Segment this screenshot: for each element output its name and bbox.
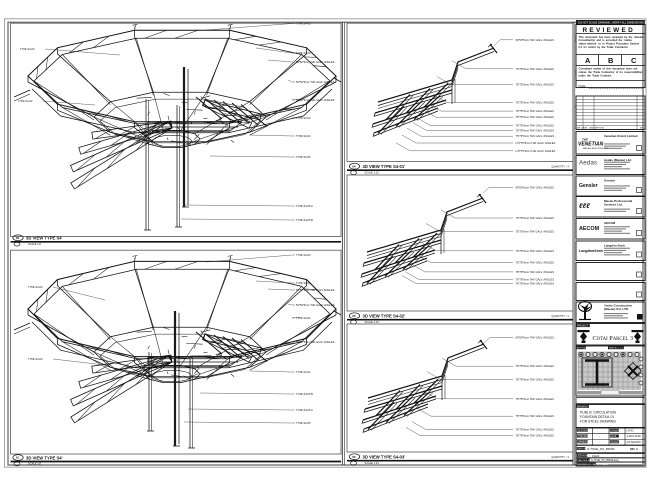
svg-text:under the Trade Contract.: under the Trade Contract. bbox=[579, 73, 612, 77]
svg-text:TYPE S4-03: TYPE S4-03 bbox=[296, 22, 311, 26]
svg-text:SCALE 1:8: SCALE 1:8 bbox=[28, 462, 41, 466]
svg-text:75*75*6mm THK GALV. ANGLES: 75*75*6mm THK GALV. ANGLES bbox=[516, 216, 555, 220]
svg-text:31122: 31122 bbox=[592, 454, 600, 458]
svg-text:PARCEL 1, LOT 2: PARCEL 1, LOT 2 bbox=[609, 347, 627, 350]
svg-text:KEY PLAN: KEY PLAN bbox=[577, 347, 588, 350]
svg-text:QUANTITY : 4: QUANTITY : 4 bbox=[552, 455, 570, 459]
svg-text:SCALE: SCALE bbox=[610, 441, 618, 444]
svg-text:QUANTITY : 4: QUANTITY : 4 bbox=[552, 164, 570, 168]
svg-text:75*75*6mm THK GALV. ANGLES: 75*75*6mm THK GALV. ANGLES bbox=[516, 278, 555, 282]
svg-text:SCALE 1:8: SCALE 1:8 bbox=[28, 242, 41, 246]
svg-text:75*75*6mm THK GALV. ANGLES: 75*75*6mm THK GALV. ANGLES bbox=[516, 129, 555, 133]
svg-text:75*75*6mm THK GALV. ANGLES: 75*75*6mm THK GALV. ANGLES bbox=[516, 101, 555, 105]
svg-text:QUANTITY : 4: QUANTITY : 4 bbox=[552, 314, 570, 318]
svg-text:TYPE S4-03: TYPE S4-03 bbox=[296, 116, 311, 120]
svg-text:C: C bbox=[631, 56, 637, 65]
svg-text:L75*75*6mm THK GALV. ANGLES: L75*75*6mm THK GALV. ANGLES bbox=[516, 141, 556, 145]
svg-text:Consultant(s) and is accord: Consultant(s) and is accorded the 'statu… bbox=[579, 38, 633, 42]
svg-text:75*75*6mm THK GALV. ANGLES: 75*75*6mm THK GALV. ANGLES bbox=[516, 260, 555, 264]
svg-text:5.4 for action by the Tra: 5.4 for action by the Trade Contractor. bbox=[579, 45, 629, 49]
svg-text:REFERENCE CAD FILE NAME: REFERENCE CAD FILE NAME bbox=[577, 463, 608, 466]
svg-text:(Macau) CO, LTD.: (Macau) CO, LTD. bbox=[604, 307, 629, 311]
svg-text:DO NOT SCALE DRAWING. VERIFY A: DO NOT SCALE DRAWING. VERIFY ALL DIMENSI… bbox=[578, 21, 650, 25]
svg-text:DRAWING TITLE: DRAWING TITLE bbox=[577, 405, 595, 408]
svg-text:75*75*6mm THK GALV. ANGLES: 75*75*6mm THK GALV. ANGLES bbox=[516, 282, 555, 286]
svg-text:S-TSUE_PZ_85099.dwg: S-TSUE_PZ_85099.dwg bbox=[591, 459, 619, 462]
svg-text:50*50*5mm THK GALV. ANGLES: 50*50*5mm THK GALV. ANGLES bbox=[296, 98, 335, 102]
svg-text:50*50*5mm THK GALV. ANGLES: 50*50*5mm THK GALV. ANGLES bbox=[296, 303, 335, 307]
svg-text:3D VIEW TYPE S4': 3D VIEW TYPE S4' bbox=[26, 455, 63, 460]
svg-text:50*50*5mm THK GALV. ANGLES: 50*50*5mm THK GALV. ANGLES bbox=[296, 80, 335, 84]
svg-text:MK DATE DESCRIPTION: MK DATE DESCRIPTION bbox=[577, 127, 604, 130]
svg-text:Aedas: Aedas bbox=[579, 160, 597, 167]
svg-text:status referred to in Proj: status referred to in Project Procedure … bbox=[579, 42, 640, 46]
svg-text:3D VIEW TYPE S4: 3D VIEW TYPE S4 bbox=[26, 236, 62, 241]
svg-text:TYPE S4-05 B: TYPE S4-05 B bbox=[296, 392, 313, 396]
svg-text:50*50*5mm THK GALV. ANGLES: 50*50*5mm THK GALV. ANGLES bbox=[516, 335, 555, 339]
svg-text:TYPE S4-05 B: TYPE S4-05 B bbox=[296, 218, 313, 222]
svg-text:DRAWN: DRAWN bbox=[610, 429, 619, 432]
svg-text:75*75*6mm THK GALV. ANGLES: 75*75*6mm THK GALV. ANGLES bbox=[516, 83, 555, 87]
svg-text:50*50*5mm THK GALV. ANGLES: 50*50*5mm THK GALV. ANGLES bbox=[296, 340, 335, 344]
svg-text:75*75*6mm THK GALV. ANGLES: 75*75*6mm THK GALV. ANGLES bbox=[516, 109, 555, 113]
svg-text:B: B bbox=[608, 56, 614, 65]
svg-text:3D VIEW TYPE S4-02': 3D VIEW TYPE S4-02' bbox=[363, 314, 406, 319]
svg-text:Gensler: Gensler bbox=[579, 183, 598, 189]
svg-text:75*75*6mm THK GALV. ANGLES: 75*75*6mm THK GALV. ANGLES bbox=[516, 397, 555, 401]
svg-text:75*75*6mm THK GALV. ANGLES: 75*75*6mm THK GALV. ANGLES bbox=[516, 378, 555, 382]
svg-text:75*75*6mm THK GALV. ANGLES: 75*75*6mm THK GALV. ANGLES bbox=[516, 230, 555, 234]
svg-text:50*50*5mm THK GALV. ANGLES: 50*50*5mm THK GALV. ANGLES bbox=[296, 60, 335, 64]
svg-text:A: A bbox=[585, 56, 591, 65]
svg-text:75*75*6mm THK GALV. ANGLES: 75*75*6mm THK GALV. ANGLES bbox=[516, 414, 555, 418]
svg-text:06: 06 bbox=[352, 455, 356, 459]
svg-text:Venetian Orient Limited: Venetian Orient Limited bbox=[604, 134, 638, 138]
svg-text:75*75*6mm THK GALV. ANGLES: 75*75*6mm THK GALV. ANGLES bbox=[516, 115, 555, 119]
svg-text:AS SHOWN: AS SHOWN bbox=[627, 440, 641, 444]
svg-text:Services Ltd.: Services Ltd. bbox=[604, 202, 623, 206]
svg-text:LYHO: LYHO bbox=[627, 428, 634, 432]
svg-text:75*75*6mm THK GALV. ANGLES: 75*75*6mm THK GALV. ANGLES bbox=[516, 134, 555, 138]
svg-text:APPROVED: APPROVED bbox=[577, 441, 590, 444]
svg-text:75*75*6mm THK GALV. ANGLES: 75*75*6mm THK GALV. ANGLES bbox=[516, 270, 555, 274]
svg-text:TYPE S4-03: TYPE S4-03 bbox=[296, 316, 311, 320]
svg-text:TYPE S4-05 A: TYPE S4-05 A bbox=[296, 408, 313, 412]
svg-text:75*75*6mm THK GALV. ANGLES: 75*75*6mm THK GALV. ANGLES bbox=[516, 433, 555, 437]
svg-text:10: 10 bbox=[16, 456, 20, 460]
svg-text:S-TSUE_PZ_85099: S-TSUE_PZ_85099 bbox=[587, 447, 615, 451]
svg-text:75*75*6mm THK GALV. ANGLES: 75*75*6mm THK GALV. ANGLES bbox=[516, 428, 555, 432]
svg-text:3D VIEW TYPE S4-01': 3D VIEW TYPE S4-01' bbox=[363, 164, 406, 169]
svg-text:DWG NO: DWG NO bbox=[577, 449, 587, 451]
svg-text:AECOM: AECOM bbox=[579, 226, 600, 232]
svg-text:3D VIEW TYPE S4-03': 3D VIEW TYPE S4-03' bbox=[363, 455, 406, 460]
svg-text:-: - bbox=[599, 441, 600, 444]
svg-text:75*75*6mm THK GALV. ANGLES: 75*75*6mm THK GALV. ANGLES bbox=[516, 67, 555, 71]
svg-text:05: 05 bbox=[352, 314, 356, 318]
svg-text:TYPE S4-03: TYPE S4-03 bbox=[28, 357, 43, 361]
svg-text:TYPE S4-03: TYPE S4-03 bbox=[296, 253, 311, 257]
svg-text:Aedas (Macau) Ltd.: Aedas (Macau) Ltd. bbox=[604, 158, 632, 162]
svg-text:50*50*5mm THK GALV. ANGLES: 50*50*5mm THK GALV. ANGLES bbox=[296, 288, 335, 292]
svg-text:L75*75*6mm THK GALV. ANGLES: L75*75*6mm THK GALV. ANGLES bbox=[516, 149, 556, 153]
svg-text:TYPE S4-05 A: TYPE S4-05 A bbox=[296, 204, 313, 208]
svg-text:SCALE 1:10: SCALE 1:10 bbox=[365, 461, 380, 465]
svg-text:TYPE S4-03: TYPE S4-03 bbox=[20, 47, 35, 51]
svg-text:LangdonSeah: LangdonSeah bbox=[579, 249, 604, 253]
svg-text:1-MAY-2018: 1-MAY-2018 bbox=[627, 434, 642, 438]
svg-text:50*50*5mm THK GALV. ANGLES: 50*50*5mm THK GALV. ANGLES bbox=[516, 38, 555, 42]
svg-text:CHECKED: CHECKED bbox=[577, 436, 589, 438]
svg-text:FOR STEEL DRAWING: FOR STEEL DRAWING bbox=[580, 420, 616, 424]
svg-text:TYPE S4-03: TYPE S4-03 bbox=[296, 281, 311, 285]
svg-text:09: 09 bbox=[16, 236, 20, 240]
svg-text:Langdon Seah: Langdon Seah bbox=[604, 244, 625, 248]
svg-text:-: - bbox=[599, 435, 600, 438]
svg-text:FOUNTAIN DETAIL 01: FOUNTAIN DETAIL 01 bbox=[580, 415, 614, 419]
svg-text:Consultant review of this: Consultant review of this document does … bbox=[579, 67, 638, 71]
svg-text:Date :: Date : bbox=[579, 85, 588, 89]
svg-text:PUBLIC CIRCULATION: PUBLIC CIRCULATION bbox=[580, 411, 616, 415]
svg-text:relieve the Trade Contracto: relieve the Trade Contractor of its resp… bbox=[579, 70, 644, 74]
svg-text:DESIGNED: DESIGNED bbox=[577, 430, 589, 432]
svg-text:This document has been rev: This document has been reviewed by the r… bbox=[579, 35, 644, 39]
svg-text:ℓℓℓ: ℓℓℓ bbox=[578, 203, 590, 210]
svg-text:75*75*6mm THK GALV. ANGLES: 75*75*6mm THK GALV. ANGLES bbox=[516, 364, 555, 368]
svg-text:REV A: REV A bbox=[630, 448, 638, 451]
svg-text:TYPE S4-04: TYPE S4-04 bbox=[296, 134, 311, 138]
svg-text:SCALE 1:10: SCALE 1:10 bbox=[365, 170, 380, 174]
svg-text:DATE: DATE bbox=[610, 435, 616, 438]
svg-text:PROJECT TITLE: PROJECT TITLE bbox=[577, 324, 596, 327]
svg-text:SCALE 1:10: SCALE 1:10 bbox=[365, 320, 380, 324]
svg-text:75*75*6mm THK GALV. ANGLES: 75*75*6mm THK GALV. ANGLES bbox=[516, 123, 555, 127]
svg-text:COTAI PARCEL 3: COTAI PARCEL 3 bbox=[593, 335, 634, 342]
svg-text:TYPE S4-04: TYPE S4-04 bbox=[296, 370, 311, 374]
svg-text:TYPE S4-05: TYPE S4-05 bbox=[296, 421, 311, 425]
svg-text:50*50*5mm THK GALV. ANGLES: 50*50*5mm THK GALV. ANGLES bbox=[516, 185, 555, 189]
svg-text:TYPE S4-02: TYPE S4-02 bbox=[18, 99, 33, 103]
svg-text:TYPE S4-03: TYPE S4-03 bbox=[296, 51, 311, 55]
svg-text:TYPE S4-05: TYPE S4-05 bbox=[296, 155, 311, 159]
svg-text:04: 04 bbox=[352, 164, 356, 168]
svg-text:TYPE S4-02: TYPE S4-02 bbox=[28, 285, 43, 289]
svg-text:VENETIAN: VENETIAN bbox=[578, 142, 604, 148]
svg-text:75*75*6mm THK GALV. ANGLES: 75*75*6mm THK GALV. ANGLES bbox=[516, 249, 555, 253]
svg-text:Gensler: Gensler bbox=[604, 179, 616, 183]
svg-text:REVIEWED: REVIEWED bbox=[583, 27, 636, 34]
svg-text:AECOM: AECOM bbox=[604, 221, 616, 225]
svg-text:JOB NUMBER: JOB NUMBER bbox=[577, 456, 592, 458]
